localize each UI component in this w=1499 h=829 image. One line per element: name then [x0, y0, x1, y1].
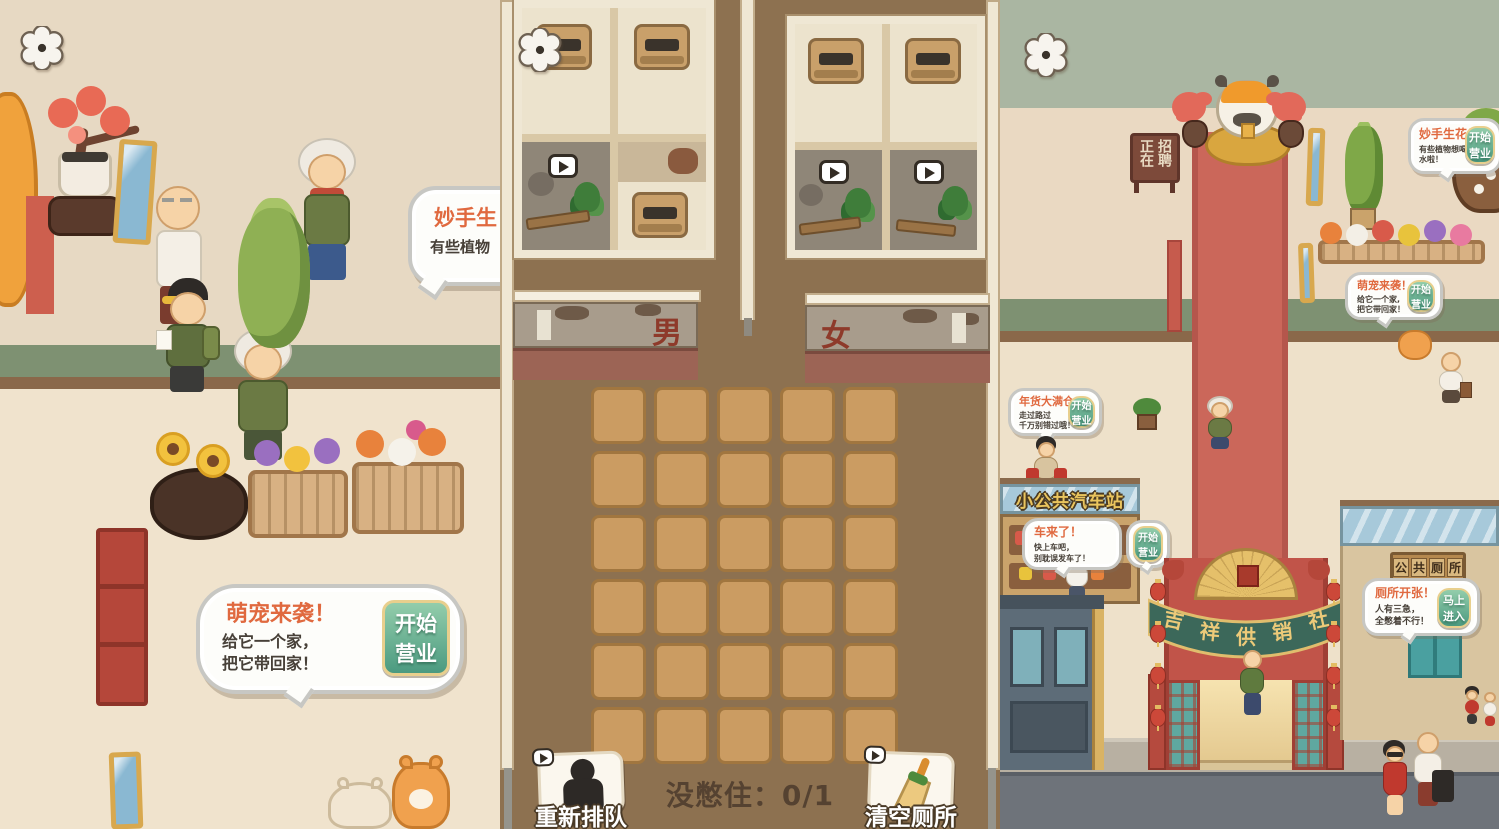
pet-arrival-bubble: 萌宠来袭！ 给它一个家， 把它带回家！ 开始 营业 — [196, 584, 464, 694]
leafy-bush — [238, 208, 310, 348]
shop-goods — [1019, 567, 1032, 580]
settings-gear-icon[interactable] — [20, 26, 64, 70]
bus-station-sign: 小公共汽车站 — [1016, 487, 1124, 512]
queue-grid — [591, 387, 898, 764]
flower-box-flowers — [1320, 222, 1342, 244]
kid-with-cap — [158, 282, 220, 396]
queue-tile[interactable] — [654, 515, 709, 572]
bubble-title: 车来了！ — [1034, 526, 1082, 540]
round-flower-pot — [150, 468, 248, 540]
queue-tile[interactable] — [654, 643, 709, 700]
button-label: 开始 — [1072, 397, 1092, 412]
man-entering-shop — [1236, 650, 1268, 722]
arch-char: 供 — [1236, 621, 1256, 650]
bubble-line: 有些植物 — [430, 238, 490, 258]
divider-pole — [740, 0, 755, 320]
red-lantern — [1150, 624, 1166, 643]
queue-tile[interactable] — [780, 579, 835, 636]
queue-tile[interactable] — [654, 579, 709, 636]
squat-toilet — [634, 24, 690, 70]
men-sign-text: 男 — [652, 308, 682, 352]
requeue-label: 重新排队 — [520, 798, 642, 829]
sign-leg — [1134, 183, 1139, 193]
fortune-cat — [1216, 80, 1278, 138]
mens-sign-wall: 男 — [513, 302, 698, 348]
button-label: 进入 — [1443, 608, 1465, 624]
enter-now-button[interactable]: 马上 进入 — [1437, 588, 1471, 628]
queue-tile[interactable] — [843, 387, 898, 444]
toilet-sign-char: 共 — [1411, 558, 1427, 577]
bubble-title: 妙手生 — [434, 206, 497, 230]
paper — [156, 330, 172, 350]
plant-pot — [1137, 414, 1157, 430]
potted-plant — [845, 188, 871, 218]
button-label: 开始 — [1138, 529, 1158, 544]
arch-char: 祥 — [1199, 615, 1222, 646]
hiring-sign-col: 正在 — [1139, 139, 1153, 180]
plum-blossoms — [1272, 92, 1306, 122]
queue-tile[interactable] — [654, 451, 709, 508]
lattice-door — [1292, 680, 1326, 770]
gold-mirror — [109, 751, 144, 829]
queue-tile[interactable] — [717, 643, 772, 700]
button-label: 马上 — [1443, 592, 1465, 608]
trellis-pot — [1350, 208, 1376, 230]
button-label: 营业 — [1072, 412, 1092, 427]
scroll — [1241, 123, 1255, 139]
queue-tile[interactable] — [591, 451, 646, 508]
queue-tile[interactable] — [780, 643, 835, 700]
ad-play-icon[interactable] — [819, 160, 849, 184]
button-label: 营业 — [1411, 296, 1431, 311]
start-business-button[interactable]: 开始 营业 — [382, 600, 450, 676]
queue-tile[interactable] — [843, 451, 898, 508]
sunglasses — [1387, 752, 1403, 757]
squat-toilet — [632, 192, 688, 238]
sign-leg — [1170, 183, 1175, 193]
grandma-on-carpet — [1203, 398, 1237, 450]
sunflower — [156, 432, 190, 466]
brick-base — [805, 351, 990, 383]
bus-station-awning: 小公共汽车站 — [1000, 484, 1140, 514]
goods-bubble: 年货大满仓！ 走过路过 千万别错过哦！ 开始 营业 — [1008, 388, 1102, 436]
queue-tile[interactable] — [843, 643, 898, 700]
button-label: 营业 — [1469, 145, 1491, 161]
bus-bubble: 车来了！ 快上车吧， 别耽误发车了！ — [1022, 518, 1122, 570]
doorway — [1010, 701, 1088, 753]
panel-street: 正在 招聘 妙手生花！ — [1000, 0, 1499, 829]
toilet-sign-char: 所 — [1447, 558, 1463, 577]
wall-mirror — [1298, 243, 1315, 303]
arch-seal — [1237, 565, 1259, 587]
queue-tile[interactable] — [843, 579, 898, 636]
ad-play-icon — [532, 748, 555, 767]
toilet-sign-char: 公 — [1393, 558, 1409, 577]
red-lantern — [1150, 582, 1166, 601]
queue-tile[interactable] — [717, 451, 772, 508]
pole-cap — [744, 318, 752, 336]
cat-hood — [1221, 81, 1273, 103]
arch-char: 销 — [1271, 615, 1294, 646]
post — [988, 768, 996, 829]
shiba-dog — [1398, 330, 1432, 360]
bubble-line: 给它一个家， — [222, 632, 318, 653]
start-business-button[interactable]: 开始 营业 — [1407, 280, 1435, 312]
planter-flowers — [356, 430, 384, 458]
side-wall — [500, 0, 514, 770]
queue-tile[interactable] — [717, 387, 772, 444]
button-label: 营业 — [395, 638, 437, 668]
plant-tip-bubble: 妙手生 有些植物 — [408, 186, 500, 286]
queue-tile[interactable] — [654, 387, 709, 444]
cream-cat — [328, 782, 392, 829]
sunflower — [196, 444, 230, 478]
sign-ledge — [513, 290, 701, 302]
pet-arrival-bubble: 萌宠来袭！ 给它一个家, 把它带回家！ 开始 营业 — [1345, 272, 1443, 320]
squat-toilet — [905, 38, 961, 84]
womens-stall-block — [787, 16, 985, 258]
toilet-awning — [1340, 506, 1499, 546]
old-man-suitcase — [1408, 732, 1448, 818]
bubble-line: 给它一个家, — [1357, 295, 1400, 305]
queue-tile[interactable] — [843, 515, 898, 572]
panel-flower-shop: 妙手生 有些植物 萌宠来袭！ 给它一个家， 把它带回家！ 开始 营业 — [0, 0, 500, 829]
button-label: 开始 — [1469, 129, 1491, 145]
backpack — [202, 326, 220, 360]
queue-tile[interactable] — [591, 515, 646, 572]
bubble-title: 萌宠来袭！ — [226, 602, 336, 627]
old-man-walking — [1434, 352, 1468, 404]
queue-tile[interactable] — [717, 579, 772, 636]
red-lantern — [1150, 666, 1166, 685]
clear-toilet-label: 清空厕所 — [850, 798, 972, 829]
settings-gear-icon[interactable] — [1024, 33, 1068, 77]
red-carpet — [1192, 132, 1288, 560]
woman-red-dress — [1378, 742, 1410, 822]
plum-pot — [1278, 120, 1304, 148]
potted-plant — [574, 182, 600, 212]
plum-blossoms — [1172, 92, 1206, 122]
ad-play-icon[interactable] — [914, 160, 944, 184]
queue-tile[interactable] — [717, 707, 772, 764]
ad-play-icon — [864, 745, 887, 764]
queue-tile[interactable] — [717, 515, 772, 572]
supply-coop-arch: 吉 祥 供 销 社 — [1148, 548, 1344, 770]
queue-tile[interactable] — [780, 451, 835, 508]
bubble-line: 全憋着不行！ — [1375, 617, 1429, 629]
bubble-line: 快上车吧， — [1034, 543, 1074, 553]
bubble-line: 走过路过 — [1019, 411, 1051, 421]
ad-play-icon[interactable] — [548, 154, 578, 178]
bubble-line: 有些植物想喝水啦！ — [1419, 145, 1471, 166]
game-screenshot-triptych: 妙手生 有些植物 萌宠来袭！ 给它一个家， 把它带回家！ 开始 营业 — [0, 0, 1499, 829]
red-lantern — [1150, 708, 1166, 727]
fence-planter — [248, 470, 348, 538]
lattice-door — [1166, 680, 1200, 770]
now-hiring-sign: 正在 招聘 — [1130, 133, 1180, 183]
sign-ledge — [805, 293, 990, 305]
women-sign-text: 女 — [821, 311, 851, 355]
bubble-line: 人有三急， — [1375, 605, 1420, 617]
flower-box — [1318, 240, 1485, 264]
post — [504, 768, 512, 829]
kid-red-top — [1462, 688, 1482, 728]
queue-tile[interactable] — [591, 579, 646, 636]
window — [1010, 627, 1044, 687]
start-business-button[interactable]: 开始 营业 — [1068, 396, 1095, 428]
side-wall — [986, 0, 1000, 770]
hiring-sign-col: 招聘 — [1157, 139, 1171, 180]
gold-pillar — [1092, 609, 1104, 770]
queue-tile[interactable] — [654, 707, 709, 764]
queue-tile[interactable] — [591, 387, 646, 444]
bubble-title: 萌宠来袭！ — [1357, 280, 1412, 293]
plant-trellis — [1345, 126, 1383, 214]
toilet-sign-char: 厕 — [1429, 558, 1445, 577]
queue-tile[interactable] — [591, 643, 646, 700]
kid-white-top — [1480, 692, 1499, 732]
potted-plant — [942, 186, 968, 216]
start-business-button[interactable]: 开始 营业 — [1465, 126, 1495, 164]
plant-tip-bubble: 妙手生花！ 有些植物想喝水啦！ 开始 营业 — [1408, 118, 1499, 174]
luggage — [1460, 382, 1472, 398]
red-shelf — [96, 528, 148, 706]
wall-mirror — [1306, 128, 1326, 207]
suitcase — [1432, 770, 1454, 802]
fence-planter — [352, 462, 464, 534]
queue-tile[interactable] — [780, 387, 835, 444]
arch-curl — [1162, 560, 1184, 580]
queue-tile[interactable] — [780, 707, 835, 764]
panel-toilet-game: 男 女 重新排队 没憋住：0/1 — [500, 0, 1000, 829]
button-label: 开始 — [395, 608, 437, 638]
status-text: 没憋住：0/1 — [650, 774, 850, 814]
bubble-title: 厕所开张！ — [1375, 587, 1435, 601]
womens-sign-wall: 女 — [805, 305, 990, 351]
plum-pot — [1182, 120, 1208, 148]
settings-gear-icon[interactable] — [518, 28, 562, 72]
toilet-open-bubble: 厕所开张！ 人有三急， 全憋着不行！ 马上 进入 — [1362, 578, 1480, 636]
arch-curl — [1308, 560, 1330, 580]
button-label: 开始 — [1411, 281, 1431, 296]
queue-tile[interactable] — [780, 515, 835, 572]
slate-building — [1000, 595, 1104, 770]
brick-base — [513, 348, 698, 380]
planter-flowers — [254, 440, 280, 466]
shiba-dog — [392, 762, 450, 829]
red-banner — [1167, 240, 1182, 332]
squat-toilet — [808, 38, 864, 84]
bubble-line: 把它带回家！ — [222, 654, 318, 675]
window — [1054, 627, 1088, 687]
